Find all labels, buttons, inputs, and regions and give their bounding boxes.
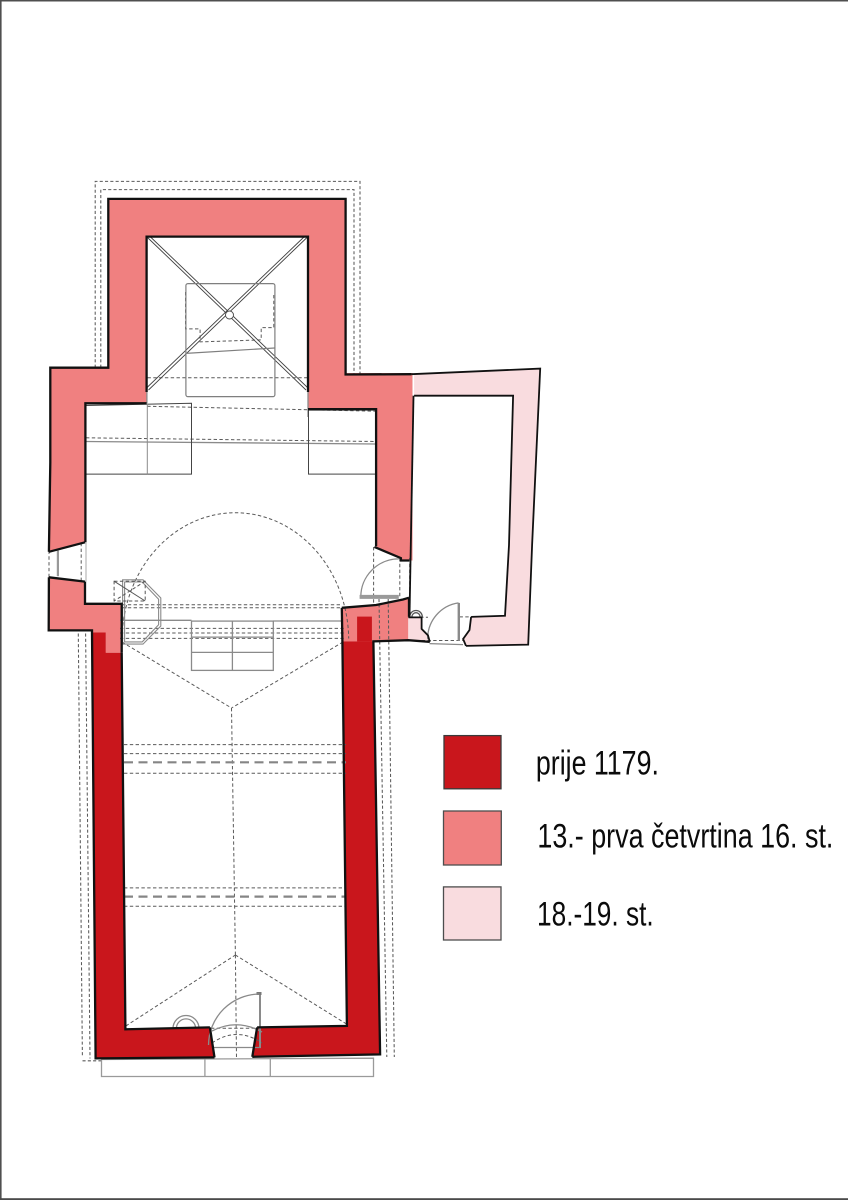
svg-text:18.-19. st.: 18.-19. st. bbox=[537, 895, 654, 933]
svg-text:prije 1179.: prije 1179. bbox=[536, 744, 659, 782]
svg-text:13.- prva četvrtina 16. st.: 13.- prva četvrtina 16. st. bbox=[537, 817, 833, 855]
